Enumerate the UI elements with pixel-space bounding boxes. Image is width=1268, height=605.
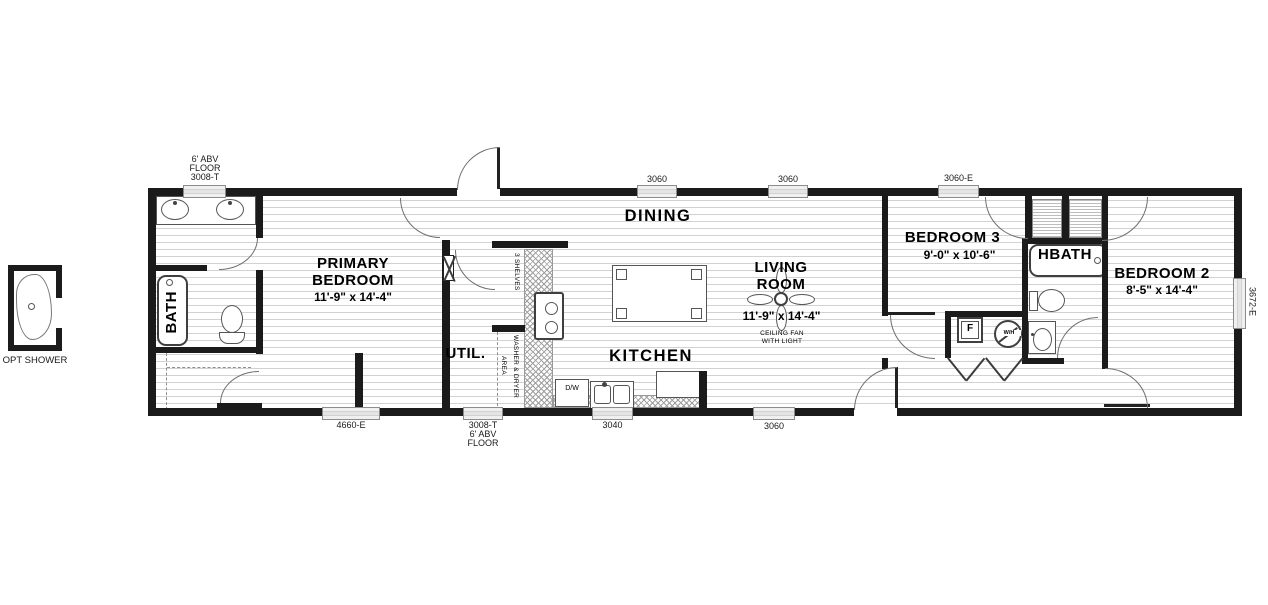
front-door-swing — [457, 147, 500, 190]
wall-bath-top-stub — [150, 265, 207, 271]
opt-shower-drain — [28, 303, 35, 310]
room-label-primary-bedroom: BEDROOM — [303, 273, 403, 290]
burner — [545, 321, 558, 334]
hbath-tub-faucet — [1094, 257, 1101, 264]
closet-rod-dashed-line — [166, 353, 167, 410]
bedroom2-closet — [1069, 199, 1102, 238]
room-label-dining: DINING — [607, 207, 709, 225]
room-dims-living: 11'-9" x 14'-4" — [728, 310, 835, 323]
sink-faucet — [602, 382, 607, 387]
wall-hbath-bottom — [1022, 358, 1064, 364]
room-label-living: ROOM — [739, 277, 823, 294]
hbath-faucet-dot — [1031, 333, 1034, 336]
window-label: 3060 — [768, 175, 808, 184]
furnace-label: F — [957, 323, 983, 334]
primary-toilet-base — [219, 332, 245, 344]
window-3008t-bottom — [463, 407, 503, 420]
faucet-dot — [228, 201, 232, 205]
room-dims-primary-bedroom: 11'-9" x 14'-4" — [288, 291, 418, 304]
window-label: 3040 — [592, 421, 633, 430]
room-label-bedroom3: BEDROOM 3 — [899, 230, 1006, 247]
dishwasher-label: D/W — [556, 385, 588, 393]
wall-kitchen-top-stub — [492, 241, 568, 248]
opt-shower-opening — [56, 298, 63, 328]
room-label-primary-bedroom: PRIMARY — [303, 256, 403, 273]
dishwasher — [555, 379, 589, 407]
wall-bath-bottom — [150, 347, 262, 353]
room-label-util: UTIL. — [438, 346, 493, 363]
chair — [616, 308, 627, 319]
window-3040-kitchen — [592, 407, 633, 420]
room-label-bedroom2: BEDROOM 2 — [1112, 266, 1212, 283]
hbath-sink — [1033, 328, 1052, 351]
wall-hbath-left — [1022, 238, 1028, 359]
chair — [616, 269, 627, 280]
wall-exterior-bottom — [148, 408, 1242, 416]
wall-hbath-top — [1025, 238, 1108, 244]
closet-label-shelves: 3 SHELVES — [507, 253, 519, 329]
closet-shelf-dashed-line — [167, 367, 251, 368]
faucet-dot — [173, 201, 177, 205]
window-label: FLOOR — [458, 439, 508, 448]
window-label: 3672-E — [1248, 281, 1257, 323]
ceiling-fan-hub — [774, 292, 788, 306]
sink-basin — [594, 385, 611, 404]
wall-exterior-left — [148, 188, 156, 416]
window-label: 3060 — [753, 422, 795, 431]
ceiling-fan-blade — [789, 294, 815, 305]
chair — [691, 269, 702, 280]
kitchen-island — [656, 371, 701, 398]
window-label: 3060 — [637, 175, 677, 184]
ceiling-fan-blade — [747, 294, 773, 305]
ceiling-fan-note: CEILING FAN — [751, 330, 813, 337]
hbath-toilet-bowl — [1038, 289, 1065, 312]
bedroom3-closet — [1032, 199, 1062, 238]
room-label-kitchen: KITCHEN — [608, 347, 694, 365]
wall-exterior-top — [148, 188, 1242, 196]
window-4660e-bottom — [322, 407, 380, 420]
wall-closet-stub — [217, 403, 262, 409]
window-3008t-top — [183, 185, 226, 198]
wall-living-bedroom3-upper — [882, 196, 888, 316]
room-dims-bedroom2: 8'-5" x 14'-4" — [1116, 284, 1208, 297]
wall-bath-right — [256, 270, 263, 354]
sink-basin — [613, 385, 630, 404]
wall-island-end — [699, 371, 707, 413]
ceiling-fan-note: WITH LIGHT — [751, 338, 813, 345]
window-label: 3060-E — [938, 174, 979, 183]
burner — [545, 302, 558, 315]
window-3060e-bedroom3 — [938, 185, 979, 198]
window-3060-dining-a — [637, 185, 677, 198]
wall-mech-closet-left — [945, 311, 951, 358]
window-3060-dining-b — [768, 185, 808, 198]
wall-mech-closet-top — [945, 311, 1028, 317]
chair — [691, 308, 702, 319]
room-label-living: LIVING — [739, 260, 823, 277]
water-heater-label: W/H — [997, 330, 1021, 336]
wall-vanity-right — [256, 196, 263, 238]
room-label-hbath: HBATH — [1035, 247, 1095, 264]
window-label: 3008-T — [175, 173, 235, 182]
primary-toilet-bowl — [221, 305, 243, 333]
wall-closet-divider — [1062, 196, 1069, 242]
room-dims-bedroom3: 9'-0" x 10'-6" — [906, 249, 1013, 262]
window-3672e-right — [1233, 278, 1246, 329]
hbath-toilet-tank — [1029, 291, 1038, 311]
washer-dryer-label: WASHER & DRYER — [507, 335, 518, 409]
floor-plan: OPT SHOWER 6' ABV FLOOR 3008-T 3060 3060… — [0, 0, 1268, 605]
washer-dryer-area-label: AREA — [495, 356, 506, 382]
window-3060-living — [753, 407, 795, 420]
opt-shower-label: OPT SHOWER — [0, 356, 70, 366]
window-label: 4660-E — [322, 421, 380, 430]
room-label-bath: BATH — [164, 282, 181, 342]
